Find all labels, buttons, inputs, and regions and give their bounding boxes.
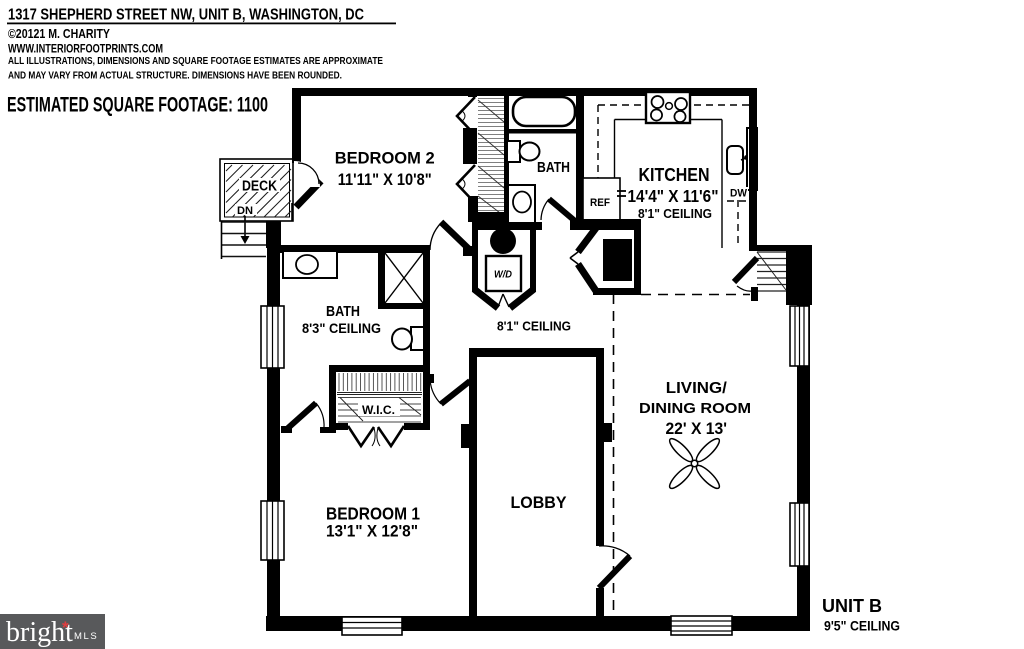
svg-text:DN: DN — [237, 205, 253, 217]
svg-text:14'4" X 11'6": 14'4" X 11'6" — [628, 186, 719, 206]
svg-text:©20121 M. CHARITY: ©20121 M. CHARITY — [8, 26, 110, 41]
svg-text:1317 SHEPHERD STREET NW, UNIT: 1317 SHEPHERD STREET NW, UNIT B, WASHING… — [8, 7, 364, 24]
svg-text:MLS: MLS — [74, 631, 98, 642]
svg-text:8'1" CEILING: 8'1" CEILING — [638, 206, 712, 221]
svg-text:LIVING/: LIVING/ — [666, 380, 728, 397]
svg-text:9'5" CEILING: 9'5" CEILING — [824, 619, 900, 634]
svg-text:BEDROOM 1: BEDROOM 1 — [326, 504, 420, 524]
svg-text:8'1" CEILING: 8'1" CEILING — [497, 319, 571, 334]
svg-text:REF: REF — [590, 197, 610, 209]
svg-text:ALL ILLUSTRATIONS, DIMENSIONS: ALL ILLUSTRATIONS, DIMENSIONS AND SQUARE… — [8, 56, 383, 67]
svg-text:BATH: BATH — [326, 303, 360, 320]
svg-text:11'11" X 10'8": 11'11" X 10'8" — [338, 171, 432, 189]
svg-text:13'1" X 12'8": 13'1" X 12'8" — [326, 522, 418, 541]
svg-text:W.I.C.: W.I.C. — [362, 405, 395, 417]
svg-text:KITCHEN: KITCHEN — [639, 164, 710, 185]
svg-text:22' X 13': 22' X 13' — [665, 420, 727, 438]
svg-text:BEDROOM 2: BEDROOM 2 — [335, 149, 435, 168]
svg-text:WWW.INTERIORFOOTPRINTS.COM: WWW.INTERIORFOOTPRINTS.COM — [8, 44, 163, 56]
svg-text:ESTIMATED SQUARE FOOTAGE: 1100: ESTIMATED SQUARE FOOTAGE: 1100 — [7, 94, 268, 117]
svg-text:BATH: BATH — [537, 159, 570, 176]
svg-text:UNIT B: UNIT B — [822, 595, 882, 616]
svg-text:8'3" CEILING: 8'3" CEILING — [302, 321, 381, 336]
svg-text:LOBBY: LOBBY — [511, 493, 568, 512]
svg-text:W/D: W/D — [494, 269, 512, 281]
svg-text:DW: DW — [730, 188, 748, 200]
svg-text:DINING ROOM: DINING ROOM — [639, 401, 751, 417]
svg-text:*: * — [62, 618, 69, 637]
svg-text:AND MAY VARY FROM ACTUAL STRUC: AND MAY VARY FROM ACTUAL STRUCTURE. DIME… — [8, 71, 342, 82]
svg-text:DECK: DECK — [242, 179, 277, 195]
